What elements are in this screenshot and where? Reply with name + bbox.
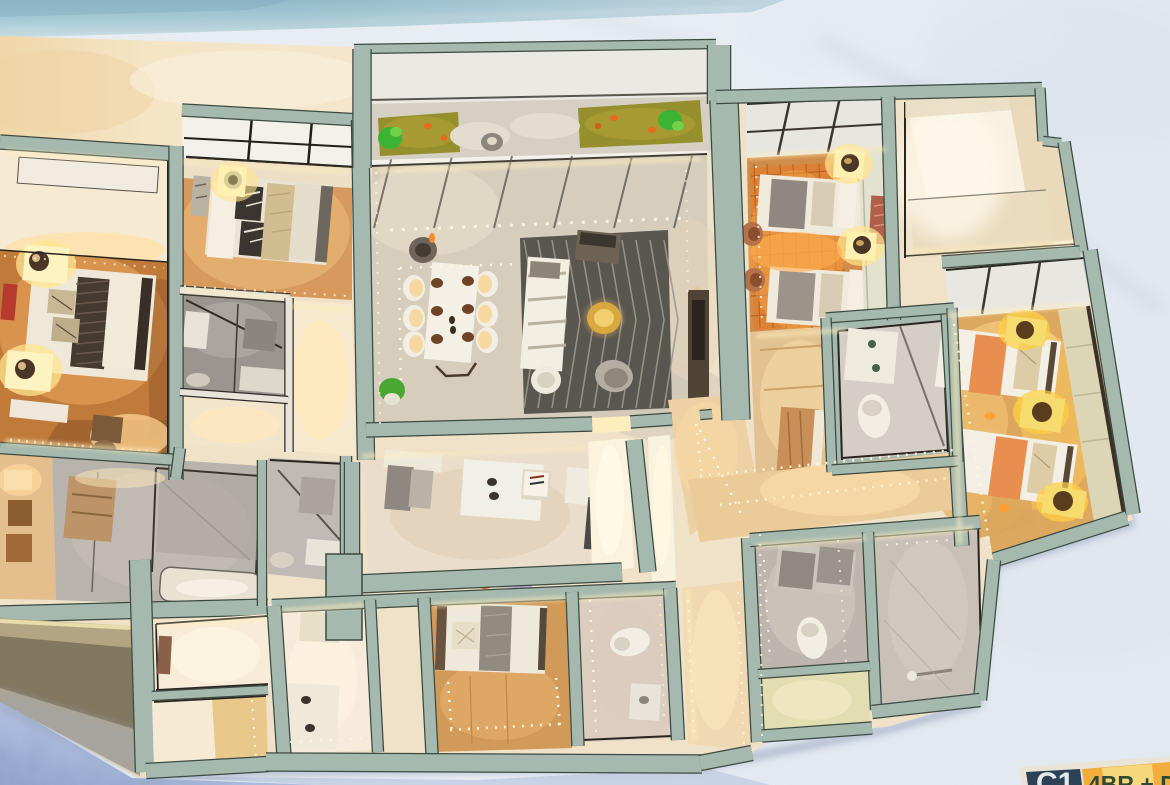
svg-text:4BR + DS: 4BR + DS — [1088, 771, 1170, 785]
svg-text:C1: C1 — [1036, 767, 1074, 785]
